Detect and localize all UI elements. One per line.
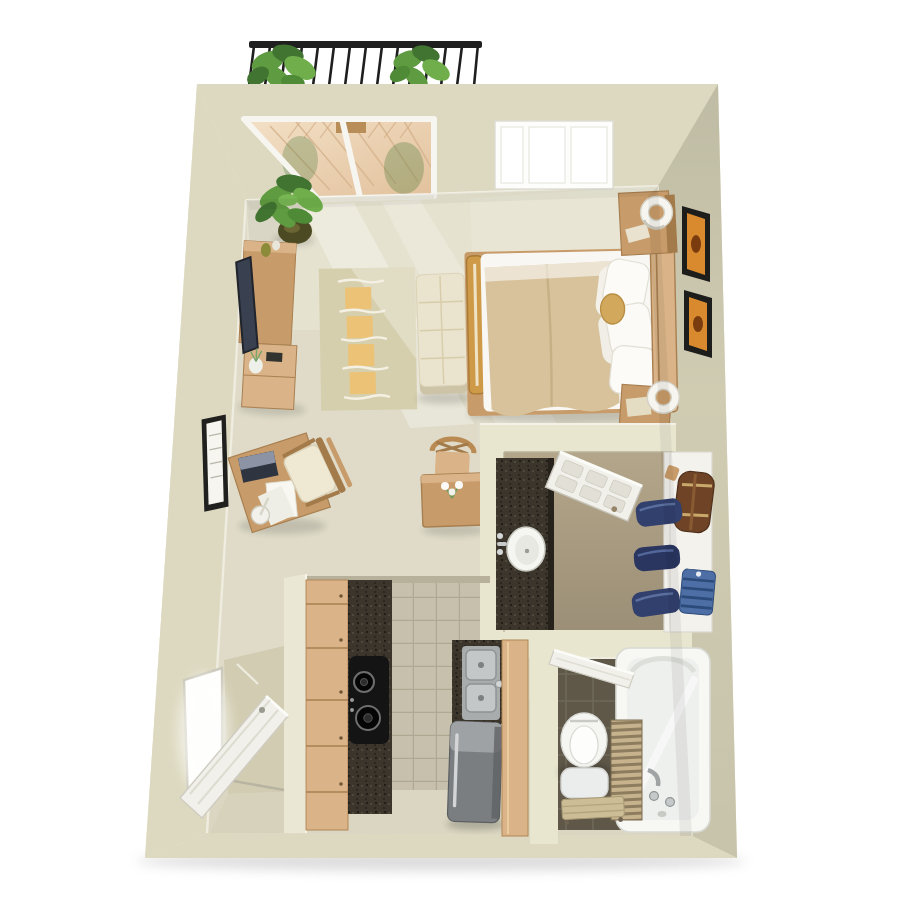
ottoman-bench bbox=[416, 273, 468, 395]
round-gold-pillow bbox=[600, 294, 625, 324]
window-pane-right bbox=[571, 127, 607, 183]
media-box bbox=[266, 352, 282, 362]
front-door-knob bbox=[259, 707, 265, 713]
floor-plan-canvas bbox=[0, 0, 900, 900]
nightstand-upper bbox=[618, 190, 677, 255]
sink-drain bbox=[478, 662, 484, 668]
window-pane-mid bbox=[529, 127, 565, 183]
deck-plant-reflection-right bbox=[384, 142, 424, 194]
closet-wall-top bbox=[480, 424, 676, 452]
cabinet-run-left bbox=[306, 580, 392, 830]
sink-refrigerator-run bbox=[446, 640, 528, 836]
cooktop bbox=[349, 656, 389, 744]
wall-art-lower bbox=[684, 290, 712, 358]
art-motif bbox=[693, 316, 703, 332]
toilet-tank bbox=[561, 768, 608, 798]
window bbox=[495, 121, 613, 189]
art-motif bbox=[691, 235, 701, 253]
kitchen-entry-wall-stub bbox=[284, 574, 306, 833]
cabinet-panel-right bbox=[502, 640, 528, 836]
floor-plan-render bbox=[0, 0, 900, 900]
wall-art-upper bbox=[682, 206, 710, 282]
window-pane-small bbox=[501, 127, 523, 183]
vanity-drain bbox=[525, 549, 529, 553]
wall-face-bottom bbox=[145, 833, 737, 858]
cooktop-knob bbox=[350, 698, 354, 702]
area-rug bbox=[319, 267, 417, 411]
refrigerator bbox=[447, 721, 502, 823]
cooktop-knob bbox=[350, 708, 354, 712]
sink-drain bbox=[478, 695, 484, 701]
folded-shirt bbox=[679, 569, 716, 616]
toilet-lid-inner bbox=[570, 726, 598, 764]
